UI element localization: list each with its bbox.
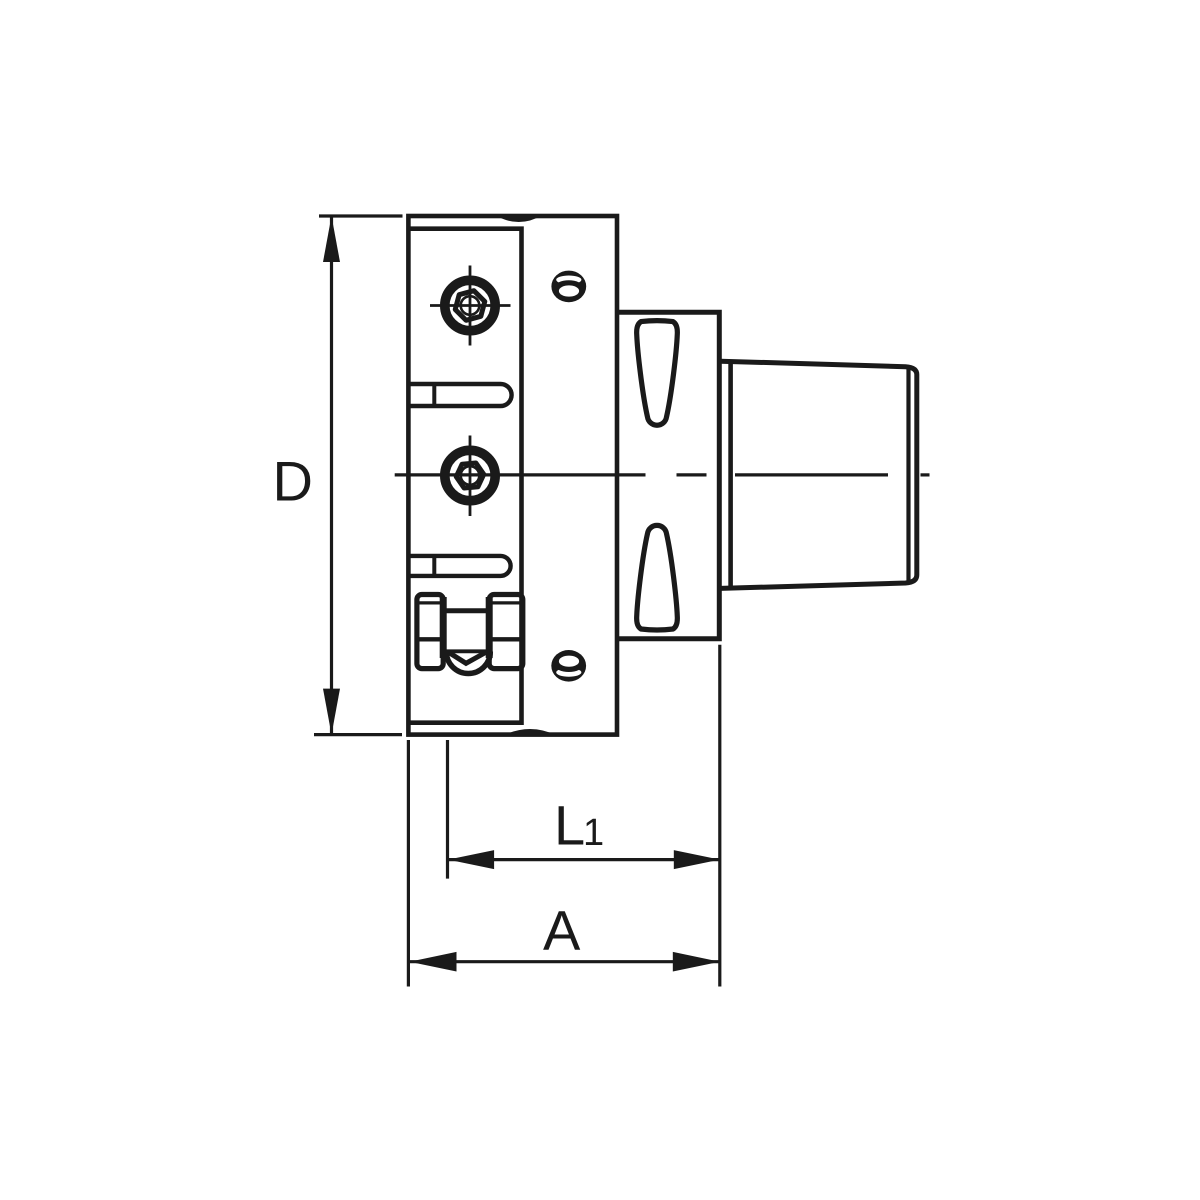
svg-text:A: A [543,898,581,961]
svg-text:1: 1 [583,812,604,854]
svg-text:D: D [273,450,313,513]
svg-text:L: L [554,794,585,857]
